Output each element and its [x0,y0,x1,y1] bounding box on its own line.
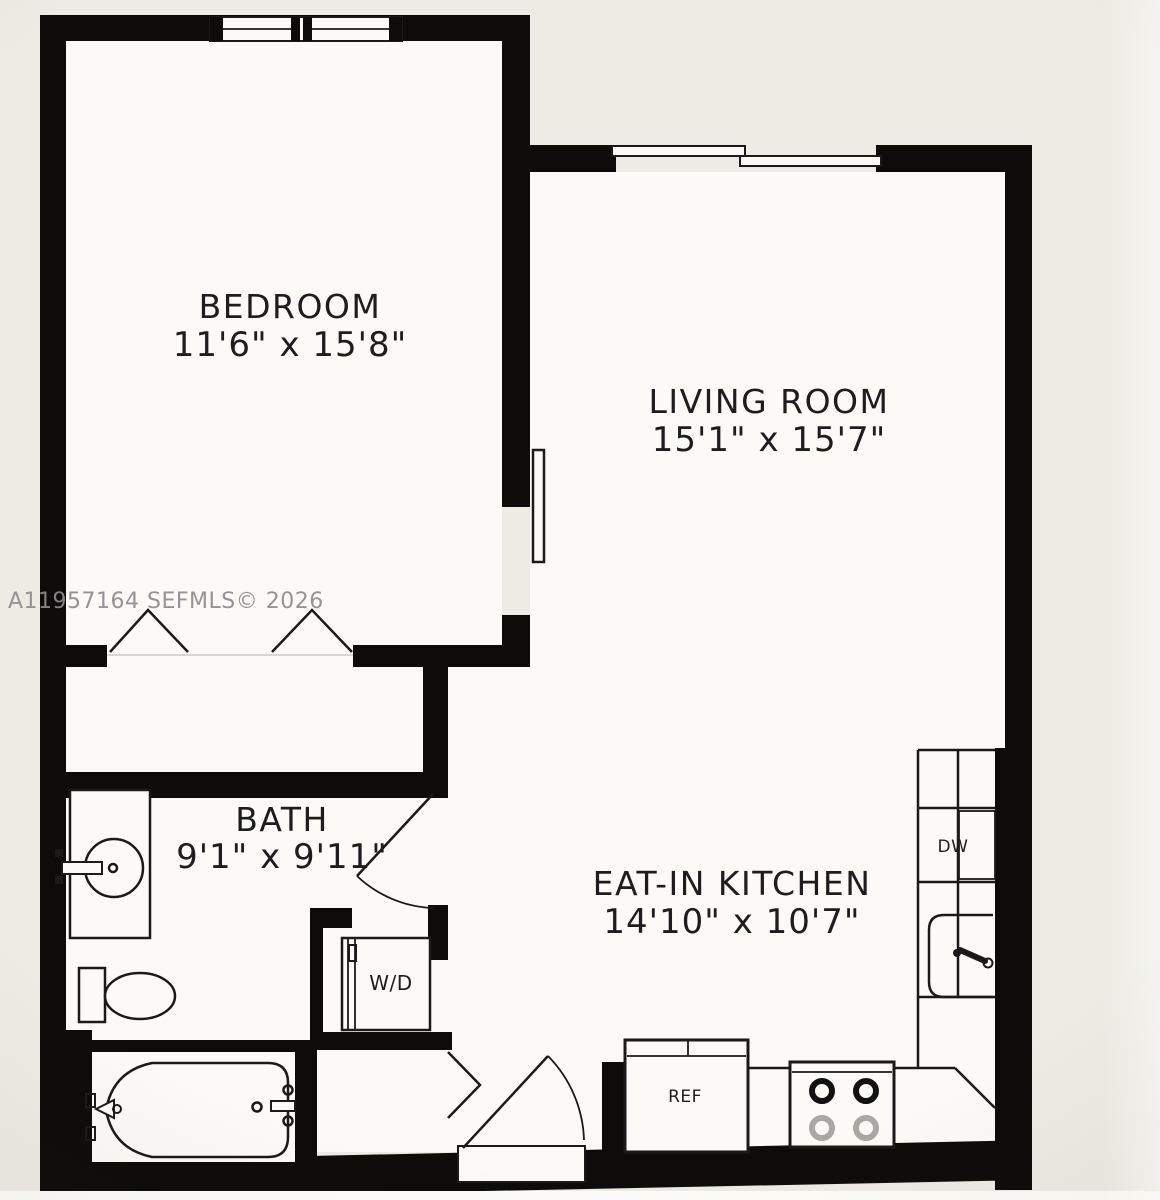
living-room-label: LIVING ROOM [648,382,889,421]
photo-bottom-edge [0,1191,1160,1200]
wall-bath-right-upper [423,645,448,792]
stove [790,1062,894,1147]
floorplan-drawing: BEDROOM 11'6" x 15'8" LIVING ROOM 15'1" … [0,0,1160,1200]
wall-bedroom-bottom-left [40,645,107,667]
wall-wd-bottom [310,1032,452,1050]
wall-tub-alcove-top [66,1040,295,1054]
wall-wd-left [310,928,323,1050]
wall-bedroom-divider-upper [502,15,530,507]
living-room-dims: 15'1" x 15'7" [652,420,887,460]
wall-right-upper [1005,145,1032,750]
bathtub [86,1052,295,1162]
washer-dryer-label: W/D [369,971,412,995]
wall-kitchen-entry-stub [602,1062,624,1157]
bedroom-dims: 11'6" x 15'8" [173,325,408,365]
floorplan-image: BEDROOM 11'6" x 15'8" LIVING ROOM 15'1" … [0,0,1160,1200]
floor-living-kitchen [530,172,1005,1152]
refrigerator-label: REF [668,1087,702,1107]
floor-hall [448,667,530,1152]
wall-right-kitchen [995,748,1032,1190]
mls-watermark: A11957164 SEFMLS© 2026 [8,589,324,614]
tub-grab-bar [271,1101,295,1111]
bedroom-door [533,450,544,562]
bedroom-window [210,17,402,41]
bath-label: BATH [235,800,329,839]
dishwasher-label: DW [938,837,969,857]
kitchen-dims: 14'10" x 10'7" [603,902,860,942]
wall-wd-top-stub [310,908,352,928]
kitchen-label: EAT-IN KITCHEN [593,864,872,903]
bedroom-label: BEDROOM [199,287,382,326]
wall-living-top-left [528,145,616,172]
toilet [79,968,175,1022]
bath-dims: 9'1" x 9'11" [176,837,388,877]
vanity-sink [55,790,150,938]
sliding-glass-door [612,146,881,166]
